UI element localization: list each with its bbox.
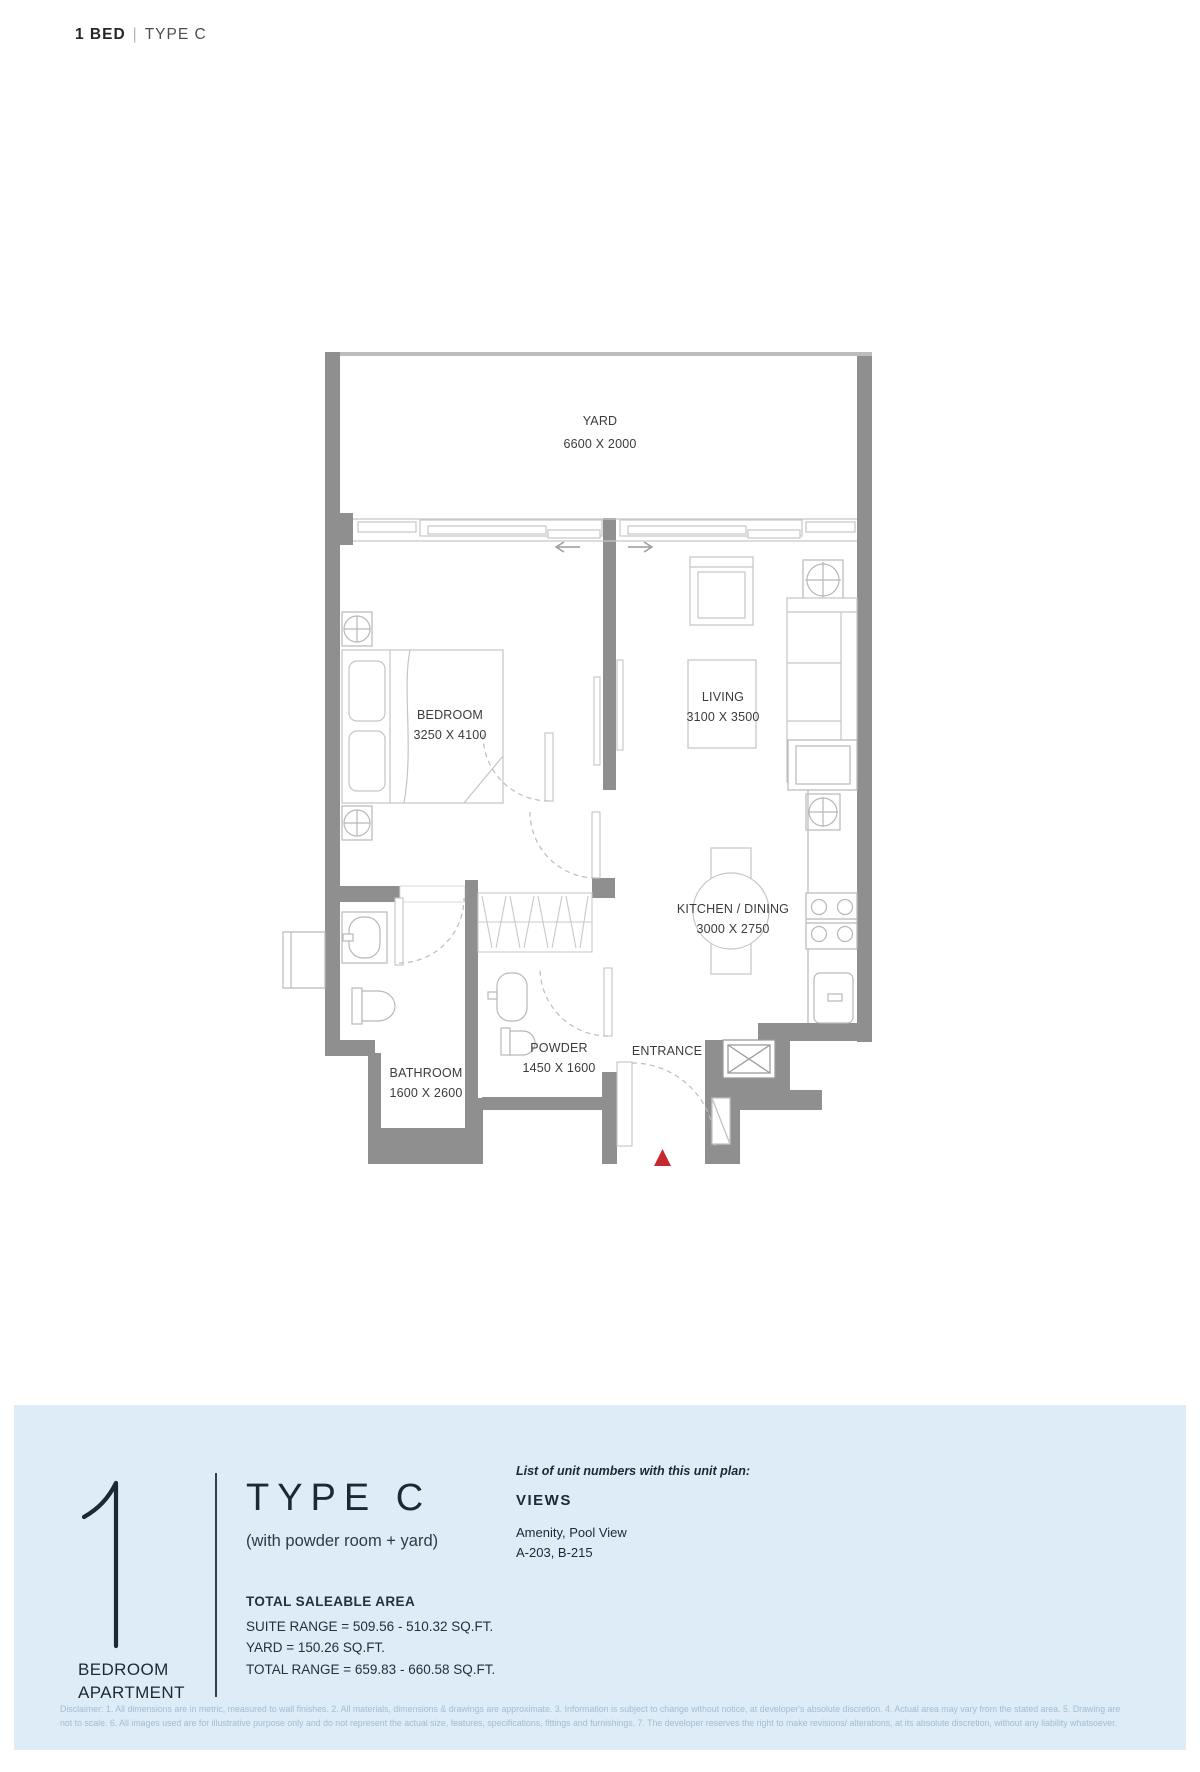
- room-dims: 3000 X 2750: [633, 922, 833, 937]
- closet: [478, 893, 592, 952]
- brochure-page: 1 BED|TYPE C: [0, 0, 1200, 1772]
- views-heading: VIEWS: [516, 1492, 750, 1509]
- entrance-marker-icon: [654, 1149, 671, 1166]
- big-number-one: [80, 1478, 126, 1650]
- room-dims: 1600 X 2600: [336, 1086, 516, 1101]
- kitchen-fixtures: [788, 740, 857, 1023]
- room-label-yard: YARD 6600 X 2000: [510, 414, 690, 452]
- room-label-living: LIVING 3100 X 3500: [633, 690, 813, 725]
- room-name: YARD: [510, 414, 690, 429]
- room-name: LIVING: [633, 690, 813, 705]
- title-separator: |: [126, 26, 145, 43]
- unit-list-intro: List of unit numbers with this unit plan…: [516, 1464, 750, 1478]
- room-dims: 1450 X 1600: [469, 1061, 649, 1076]
- suite-range: SUITE RANGE = 509.56 - 510.32 SQ.FT.: [246, 1616, 495, 1638]
- room-dims: 3100 X 3500: [633, 710, 813, 725]
- room-label-kitchen: KITCHEN / DINING 3000 X 2750: [633, 902, 833, 937]
- total-range: TOTAL RANGE = 659.83 - 660.58 SQ.FT.: [246, 1659, 495, 1681]
- unit-numbers-block: List of unit numbers with this unit plan…: [516, 1464, 750, 1563]
- apartment-type-line1: BEDROOM: [78, 1658, 185, 1681]
- room-name: BEDROOM: [360, 708, 540, 723]
- disclaimer-line2: not to scale. 6. All images used are for…: [60, 1717, 1146, 1731]
- room-label-bedroom: BEDROOM 3250 X 4100: [360, 708, 540, 743]
- panel-divider: [215, 1473, 217, 1697]
- views-value: Amenity, Pool View: [516, 1523, 750, 1543]
- type-title: TYPE C: [246, 1477, 431, 1520]
- room-dims: 3250 X 4100: [360, 728, 540, 743]
- room-name: ENTRANCE: [577, 1044, 757, 1059]
- type-subtitle: (with powder room + yard): [246, 1532, 438, 1551]
- apartment-type-label: BEDROOM APARTMENT: [78, 1658, 185, 1705]
- page-title: 1 BED|TYPE C: [75, 26, 207, 44]
- area-heading: TOTAL SALEABLE AREA: [246, 1591, 495, 1613]
- plan-type-label: TYPE C: [145, 26, 207, 43]
- room-label-entrance: ENTRANCE: [577, 1044, 757, 1059]
- info-panel: [14, 1405, 1186, 1750]
- apartment-type-line2: APARTMENT: [78, 1681, 185, 1704]
- room-dims: 6600 X 2000: [510, 437, 690, 452]
- disclaimer: Disclaimer: 1. All dimensions are in met…: [60, 1703, 1146, 1730]
- yard-area: YARD = 150.26 SQ.FT.: [246, 1637, 495, 1659]
- unit-numbers: A-203, B-215: [516, 1543, 750, 1563]
- disclaimer-line1: Disclaimer: 1. All dimensions are in met…: [60, 1703, 1146, 1717]
- saleable-area-block: TOTAL SALEABLE AREA SUITE RANGE = 509.56…: [246, 1591, 495, 1680]
- unit-type-label: 1 BED: [75, 26, 126, 43]
- room-name: KITCHEN / DINING: [633, 902, 833, 917]
